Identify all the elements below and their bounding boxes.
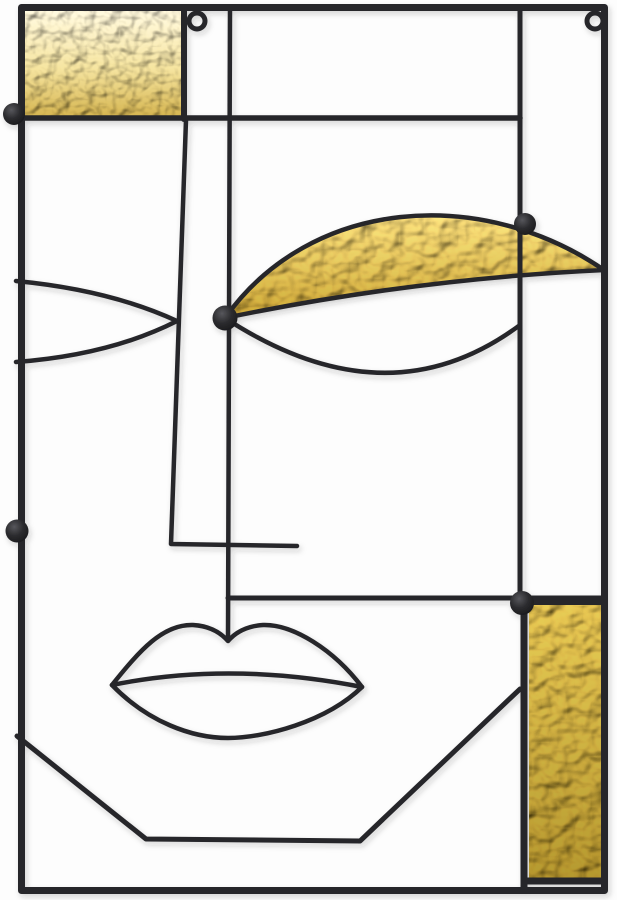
rivet-cap-brow — [514, 213, 536, 235]
rivet-cap-left-mid — [6, 520, 29, 543]
rivet-cap-left-top — [3, 103, 25, 125]
product-photo — [0, 0, 617, 900]
rivet-cap-eye — [213, 306, 238, 331]
wall-art-image — [0, 0, 617, 900]
gold-panel-top-left — [24, 10, 181, 116]
rivet-cap-panel — [510, 591, 534, 615]
gold-panel-bottom-right — [529, 604, 602, 878]
